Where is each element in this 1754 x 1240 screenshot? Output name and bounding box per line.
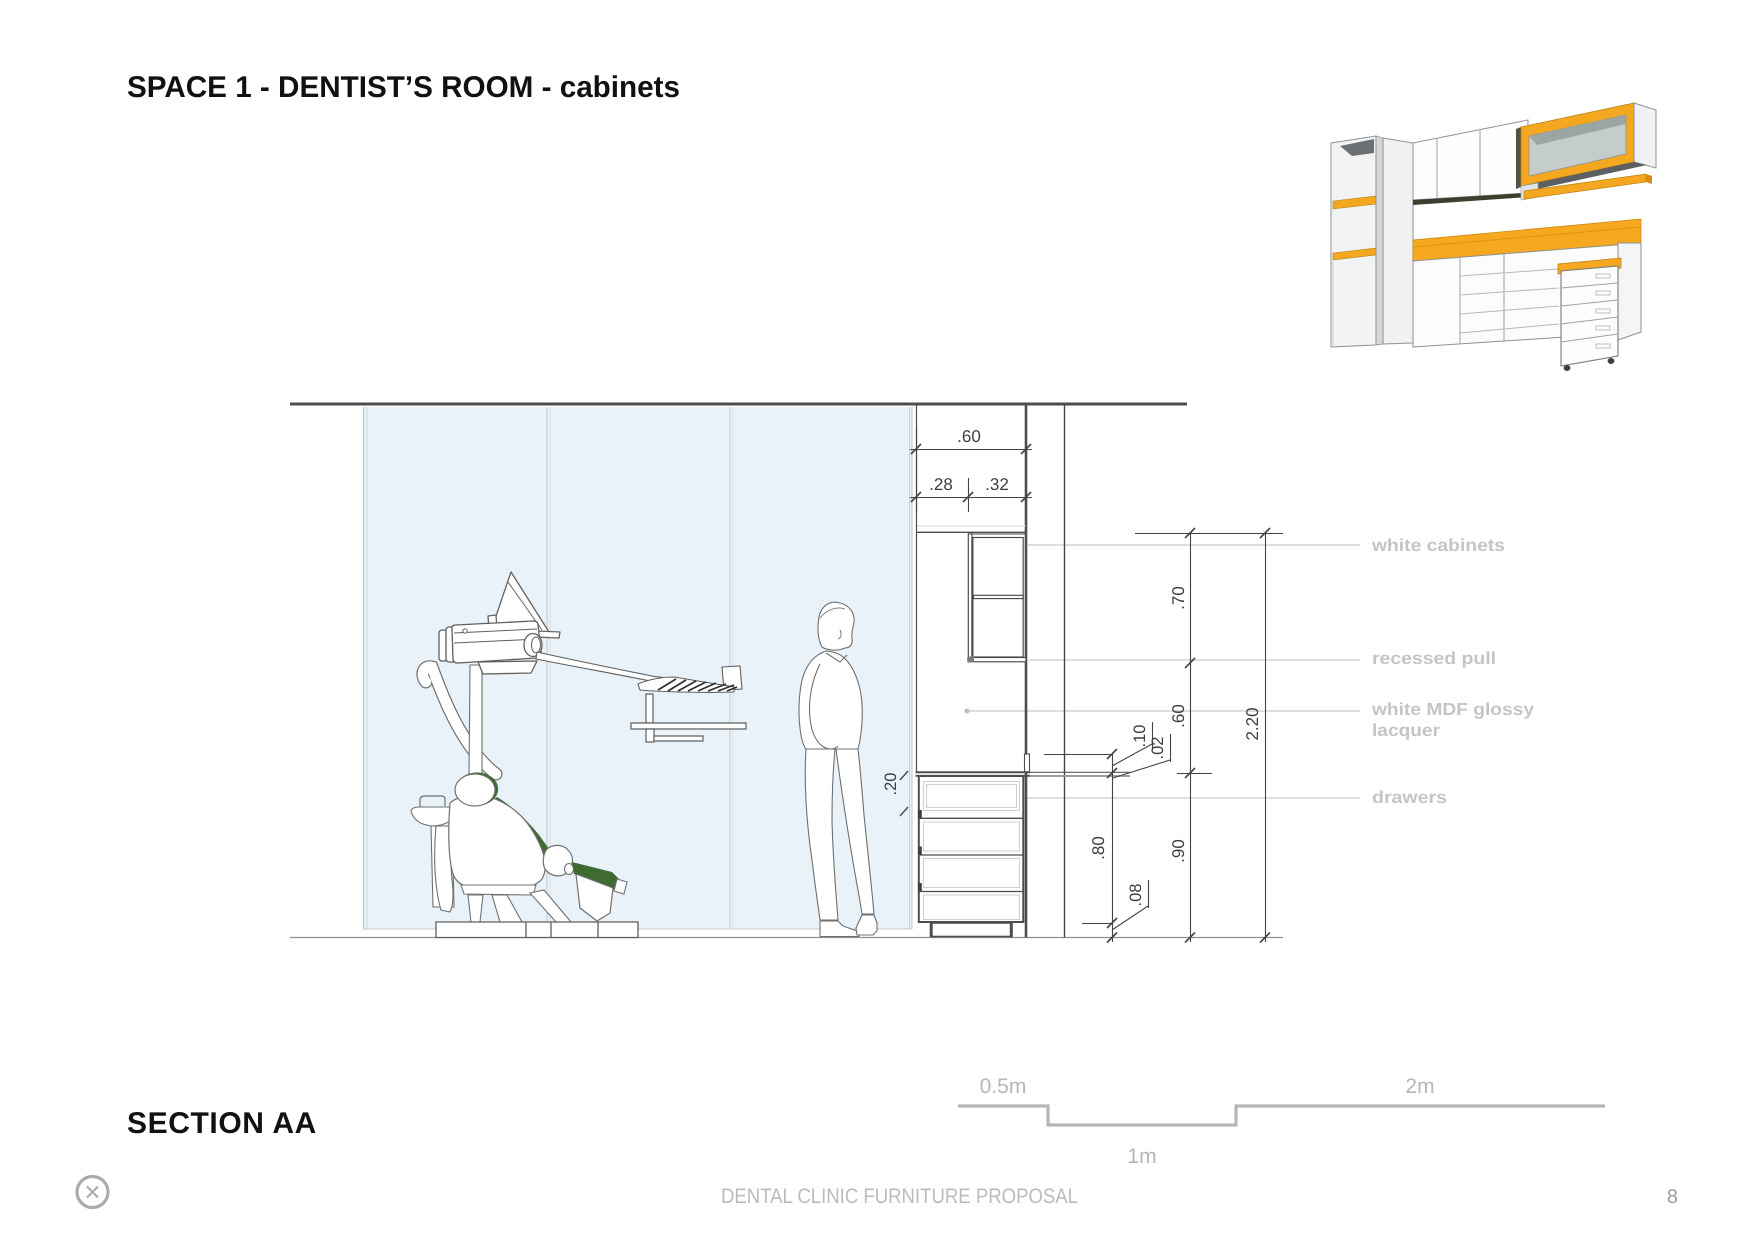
svg-text:.08: .08 — [1127, 884, 1145, 907]
svg-text:2.20: 2.20 — [1243, 707, 1262, 740]
svg-text:0.5m: 0.5m — [980, 1075, 1027, 1098]
svg-text:.90: .90 — [1169, 839, 1188, 863]
svg-text:SPACE 1 - DENTIST’S ROOM - cab: SPACE 1 - DENTIST’S ROOM - cabinets — [127, 71, 680, 104]
svg-text:.60: .60 — [1169, 704, 1188, 728]
svg-text:.80: .80 — [1089, 836, 1108, 860]
svg-text:.28: .28 — [929, 475, 953, 494]
svg-text:.20: .20 — [882, 773, 900, 796]
svg-text:.70: .70 — [1169, 586, 1188, 610]
svg-text:.60: .60 — [957, 427, 981, 446]
svg-text:recessed pull: recessed pull — [1372, 648, 1496, 668]
svg-text:drawers: drawers — [1372, 787, 1447, 807]
svg-text:SECTION AA: SECTION AA — [127, 1107, 317, 1140]
svg-text:white cabinets: white cabinets — [1371, 535, 1505, 555]
svg-text:.10: .10 — [1131, 725, 1149, 748]
svg-text:.02: .02 — [1149, 737, 1167, 760]
svg-text:.32: .32 — [985, 475, 1009, 494]
svg-text:lacquer: lacquer — [1372, 720, 1440, 740]
svg-text:8: 8 — [1667, 1186, 1678, 1208]
svg-text:1m: 1m — [1127, 1145, 1156, 1168]
svg-text:white MDF glossy: white MDF glossy — [1371, 699, 1534, 719]
svg-text:2m: 2m — [1405, 1075, 1434, 1098]
svg-text:DENTAL CLINIC FURNITURE PROPOS: DENTAL CLINIC FURNITURE PROPOSAL — [721, 1185, 1078, 1208]
